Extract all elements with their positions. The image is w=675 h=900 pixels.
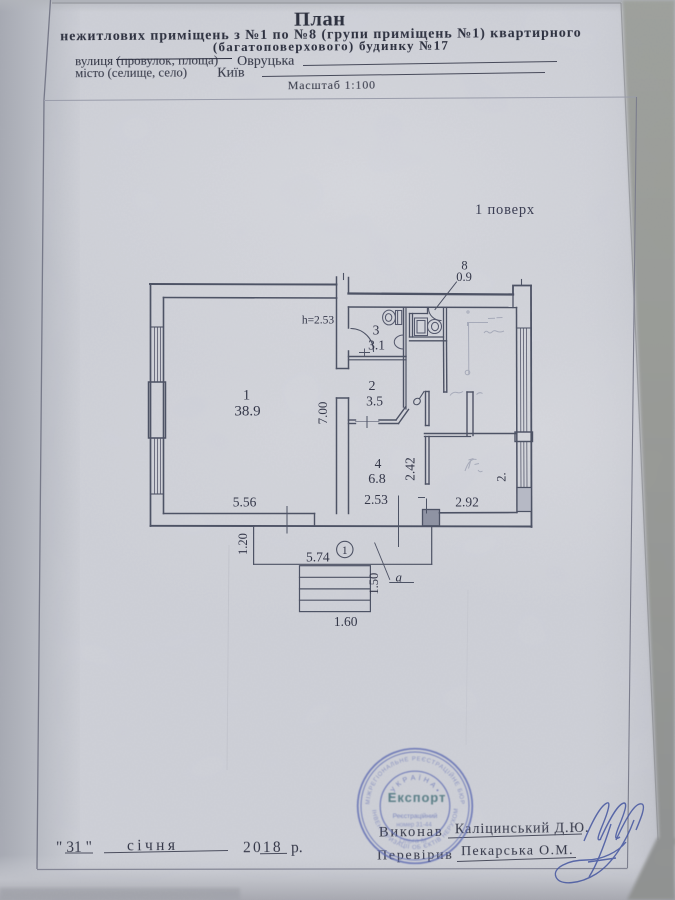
svg-text:2.53: 2.53 bbox=[364, 492, 388, 507]
svg-text:5.56: 5.56 bbox=[233, 495, 257, 510]
svg-text:1.60: 1.60 bbox=[334, 614, 358, 629]
svg-text:h=2.53: h=2.53 bbox=[302, 315, 335, 327]
svg-text:2.42: 2.42 bbox=[403, 457, 418, 481]
svg-text:0.9: 0.9 bbox=[456, 270, 472, 284]
svg-text:38.9: 38.9 bbox=[234, 404, 260, 420]
svg-text:3.5: 3.5 bbox=[366, 394, 383, 409]
svg-text:1 поверх: 1 поверх bbox=[475, 202, 535, 218]
svg-text:2: 2 bbox=[369, 379, 376, 394]
svg-text:(багатоповерхового) будинку №1: (багатоповерхового) будинку №17 bbox=[213, 38, 449, 55]
svg-text:3: 3 bbox=[373, 323, 380, 338]
svg-text:3.1: 3.1 bbox=[368, 338, 385, 353]
svg-text:р.: р. bbox=[291, 839, 303, 856]
svg-text:6.8: 6.8 bbox=[368, 472, 386, 487]
svg-text:1.20: 1.20 bbox=[236, 533, 250, 555]
svg-text:4: 4 bbox=[375, 456, 382, 471]
svg-text:місто (селище, село): місто (селище, село) bbox=[75, 65, 187, 80]
svg-text:Реєстраційний: Реєстраційний bbox=[393, 812, 438, 820]
svg-text:номер 31-44: номер 31-44 bbox=[396, 822, 432, 829]
svg-text:7.00: 7.00 bbox=[315, 402, 330, 425]
svg-text:1.50: 1.50 bbox=[367, 573, 381, 595]
svg-text:Овруцька: Овруцька bbox=[237, 54, 295, 69]
svg-text:Масштаб 1:100: Масштаб 1:100 bbox=[288, 78, 376, 93]
svg-text:Пекарська О.М.: Пекарська О.М. bbox=[461, 843, 574, 859]
svg-text:5.74: 5.74 bbox=[306, 550, 330, 565]
svg-text:2.: 2. bbox=[495, 472, 509, 481]
svg-text:а: а bbox=[396, 570, 403, 585]
svg-text:Київ: Київ bbox=[217, 66, 245, 81]
svg-text:2.92: 2.92 bbox=[455, 495, 479, 510]
svg-text:1: 1 bbox=[243, 388, 250, 404]
svg-text:Ольга М: Ольга М bbox=[399, 838, 426, 845]
svg-text:Експорт: Експорт bbox=[388, 790, 446, 805]
svg-text:1: 1 bbox=[342, 545, 348, 557]
